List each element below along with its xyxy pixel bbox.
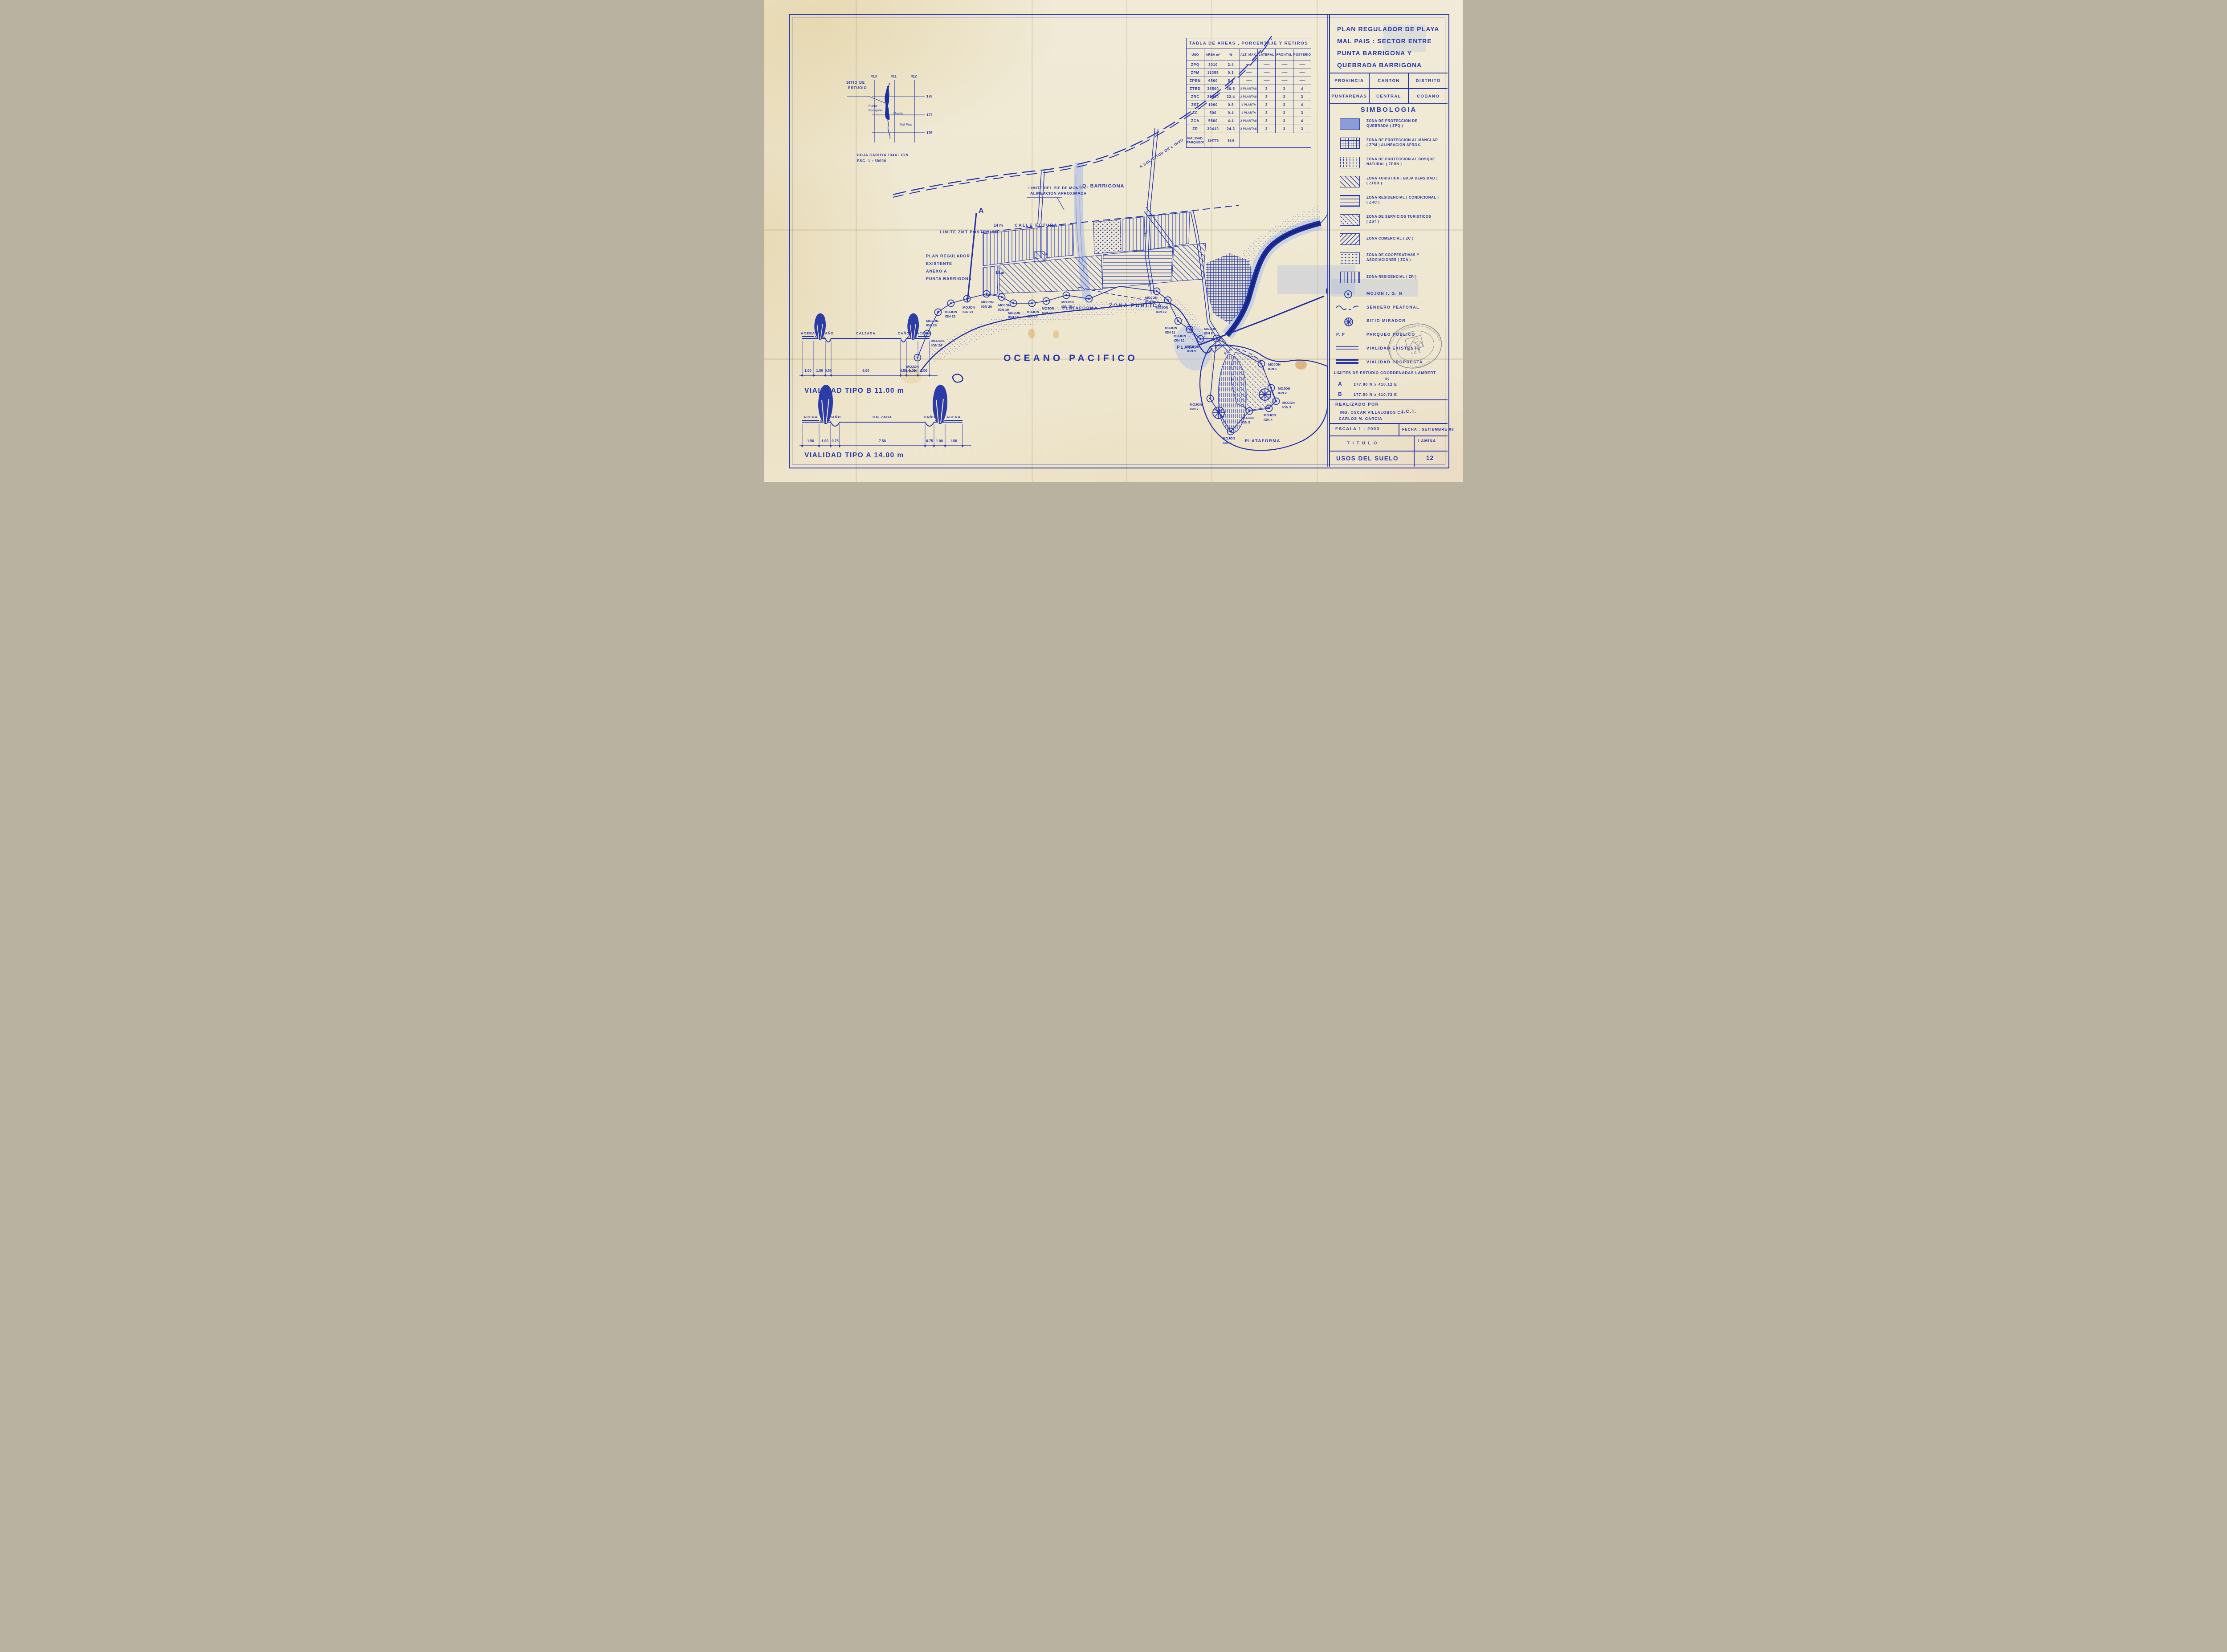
vialidad-propuesta-icon bbox=[1335, 358, 1360, 365]
coord-a-correction: 80 bbox=[1385, 377, 1390, 381]
zca-swatch bbox=[1340, 252, 1360, 264]
inset-map: 410 411 412 178 177 176 SITIO DE ESTUDIO… bbox=[844, 70, 939, 166]
svg-text:1.50: 1.50 bbox=[950, 439, 957, 443]
inset-leader bbox=[847, 96, 888, 104]
zpm-swatch bbox=[1340, 138, 1360, 149]
panel-rule bbox=[1329, 423, 1448, 424]
svg-text:ACERA: ACERA bbox=[801, 331, 815, 335]
legend-zc: ZONA COMERCIAL ( ZC ) bbox=[1331, 232, 1448, 250]
inset-caption2: ESC. 1 : 50000 bbox=[857, 159, 886, 163]
legend-mojon: MOJON I. G. N bbox=[1331, 289, 1448, 303]
zr-swatch bbox=[1340, 272, 1360, 283]
svg-text:MOJONIGN 6: MOJONIGN 6 bbox=[1223, 436, 1235, 445]
svg-text:MOJONIGN 4: MOJONIGN 4 bbox=[1264, 413, 1276, 422]
legend-zrc: ZONA RESIDENCIAL ( CONDICIONAL )( ZRC ) bbox=[1331, 194, 1448, 212]
calle-futura-m: 14 m bbox=[994, 223, 1003, 228]
svg-text:PLAN REGULADOR: PLAN REGULADOR bbox=[926, 254, 970, 258]
panel-rule bbox=[1329, 435, 1448, 436]
realizado-heading: REALIZADO POR bbox=[1335, 402, 1379, 407]
escala-divider bbox=[1399, 423, 1399, 435]
lamina-label: LAMINA bbox=[1418, 439, 1436, 443]
zone-zr bbox=[1123, 217, 1145, 252]
legend-zpq: ZONA DE PROTECCION DEQUEBRADA ( ZPQ ) bbox=[1331, 118, 1448, 135]
svg-text:EXISTENTE: EXISTENTE bbox=[926, 261, 952, 266]
tree-icon bbox=[814, 313, 826, 340]
zc-swatch bbox=[1340, 233, 1360, 245]
svg-text:0.75: 0.75 bbox=[926, 439, 933, 443]
areas-row-ztbd: ZTBD3850030.82 PLANTAS334 bbox=[1187, 85, 1311, 93]
inset-y-178: 178 bbox=[926, 94, 933, 98]
areas-row-vialidad: VIALIDAD.PARQUEOS 124775 99.8 bbox=[1187, 133, 1311, 148]
vialidad-a-section: ACERA CAÑO CALZADA CAÑO ACERA 1.50 1.00 … bbox=[798, 376, 974, 461]
zpbn-swatch bbox=[1340, 157, 1360, 168]
svg-text:1.50: 1.50 bbox=[807, 439, 814, 443]
fecha: FECHA : SETIEMBRE 98 bbox=[1402, 427, 1454, 431]
svg-text:MOJONIGN 20: MOJONIGN 20 bbox=[981, 300, 994, 309]
inset-muelle: Muelle bbox=[893, 111, 903, 115]
pie-monte-label1: LIMITE DEL PIE DE MONTE bbox=[1028, 186, 1084, 190]
svg-text:MOJONIGN 10: MOJONIGN 10 bbox=[1174, 334, 1186, 342]
oceano-label: OCEANO PACIFICO bbox=[1003, 353, 1138, 363]
areas-table: TABLA DE AREAS , PORCENTAJE Y RETIROS US… bbox=[1186, 38, 1311, 148]
section-b-label: B bbox=[1326, 288, 1328, 295]
svg-text:ACERA: ACERA bbox=[804, 415, 818, 419]
legend-zst: ZONA DE SERVICIOS TURISTICOS( ZST ) bbox=[1331, 213, 1448, 231]
coord-a: A 177.80 N x 410.12 E 80 bbox=[1338, 381, 1397, 387]
zona-publica-label: ZONA PUBLICA bbox=[1109, 302, 1162, 309]
mirador-icon bbox=[1343, 317, 1354, 327]
limite-zmt-label: LIMITE ZMT POSTERIOR bbox=[940, 230, 999, 234]
quebrada-label: Q. BARRIGONA bbox=[1082, 183, 1125, 189]
svg-text:0.50: 0.50 bbox=[900, 369, 907, 373]
svg-text:0.75: 0.75 bbox=[832, 439, 839, 443]
parqueo-p2: P bbox=[1045, 258, 1048, 261]
inset-caption1: HOJA CABUYA 1344 I IGN bbox=[857, 153, 909, 157]
svg-text:MOJONIGN 18: MOJONIGN 18 bbox=[1008, 311, 1020, 319]
svg-text:7.50: 7.50 bbox=[879, 439, 886, 443]
realizado-name1: ING. OSCAR VILLALOBOS CH. bbox=[1340, 410, 1405, 415]
svg-text:1.00: 1.00 bbox=[936, 439, 943, 443]
legend-zpm: ZONA DE PROTECCION AL MANGLAR( ZPM ) ALI… bbox=[1331, 137, 1448, 155]
inset-x-410: 410 bbox=[871, 74, 877, 78]
title-line-2: MAL PAIS : SECTOR ENTRE bbox=[1337, 35, 1444, 47]
svg-text:MOJONIGN 2: MOJONIGN 2 bbox=[1278, 387, 1290, 395]
drawing-sheet: P P A B bbox=[764, 0, 1463, 482]
distrito-value: COBANO bbox=[1409, 89, 1448, 104]
areas-row-zpbn: ZPBN65005.2———————— bbox=[1187, 77, 1311, 85]
plataforma-left-label: PLATAFORMA bbox=[1062, 306, 1098, 311]
legend-sendero: SENDERO PEATONAL bbox=[1331, 303, 1448, 317]
svg-text:MOJONIGN 3: MOJONIGN 3 bbox=[1282, 401, 1295, 409]
parqueo-box bbox=[1035, 252, 1044, 261]
svg-text:1.00: 1.00 bbox=[909, 369, 916, 373]
legend-zca: ZONA DE COOPERATIVAS YASOCIACIONES ( ZCA… bbox=[1331, 252, 1448, 269]
zpq-swatch bbox=[1340, 118, 1360, 130]
svg-text:1.00: 1.00 bbox=[821, 439, 828, 443]
svg-text:CAÑO: CAÑO bbox=[822, 331, 834, 335]
playa-label: PLAYA bbox=[1177, 345, 1195, 350]
areas-row-zrc: ZRC2800022.42 PLANTAS333 bbox=[1187, 93, 1311, 101]
svg-text:CAÑO: CAÑO bbox=[829, 415, 841, 419]
svg-text:MOJONIGN 5: MOJONIGN 5 bbox=[1241, 416, 1254, 424]
svg-text:MOJONIGN 11: MOJONIGN 11 bbox=[1165, 326, 1177, 334]
vialidad-a-title: VIALIDAD TIPO A 14.00 m bbox=[804, 452, 904, 459]
pie-monte-leader bbox=[1027, 197, 1064, 210]
provincia-header: PROVINCIA bbox=[1330, 73, 1370, 88]
zone-zr bbox=[1150, 212, 1190, 249]
vialidad-existente-icon bbox=[1335, 344, 1360, 351]
zrc-swatch bbox=[1340, 195, 1360, 207]
coord-b: B 177.50 N x 410.72 E bbox=[1338, 391, 1397, 397]
lamina-value: 12 bbox=[1426, 455, 1434, 461]
tree-icon bbox=[907, 313, 919, 340]
title-line-4: QUEBRADA BARRIGONA bbox=[1337, 59, 1444, 71]
simbologia-title: SIMBOLOGIA bbox=[1331, 106, 1447, 114]
svg-text:MOJONIGN 1: MOJONIGN 1 bbox=[1268, 362, 1281, 371]
legend-zr: ZONA RESIDENCIAL ( ZR ) bbox=[1331, 271, 1448, 289]
inset-x-411: 411 bbox=[891, 74, 897, 78]
invu-label: A SOLICITUD DE L INVU bbox=[1139, 138, 1184, 169]
zone-zr bbox=[1046, 224, 1074, 258]
svg-text:PUNTA BARRIGONA: PUNTA BARRIGONA bbox=[926, 277, 972, 281]
sendero-icon bbox=[1335, 303, 1360, 312]
svg-text:I. C. T.: I. C. T. bbox=[1411, 349, 1421, 355]
panel-rule bbox=[1329, 399, 1448, 400]
svg-text:0.50: 0.50 bbox=[825, 369, 832, 373]
svg-text:ANEXO A: ANEXO A bbox=[926, 269, 947, 273]
svg-text:ACERA: ACERA bbox=[946, 415, 961, 419]
inset-punta1: Punta bbox=[869, 104, 877, 108]
svg-text:CAÑO: CAÑO bbox=[924, 415, 935, 419]
areas-row-zr: ZR3041024.32 PLANTAS333 bbox=[1187, 125, 1311, 133]
svg-text:CALZADA: CALZADA bbox=[873, 415, 892, 419]
realizado-org: I.C.T. bbox=[1402, 409, 1416, 414]
inset-y-177: 177 bbox=[926, 113, 933, 117]
svg-text:6.00: 6.00 bbox=[862, 369, 869, 373]
svg-text:ACERA: ACERA bbox=[917, 331, 931, 335]
svg-text:1.00: 1.00 bbox=[804, 369, 812, 373]
parqueo-p1: P bbox=[1045, 253, 1048, 256]
legend-zpbn: ZONA DE PROTECCION AL BOSQUENATURAL ( ZP… bbox=[1331, 156, 1448, 174]
title-line-1: PLAN REGULADOR DE PLAYA bbox=[1337, 23, 1444, 35]
legend-ztbd: ZONA TURISTICA ( BAJA DENSIDAD )( ZTBD ) bbox=[1331, 175, 1448, 193]
inset-y-176: 176 bbox=[926, 131, 933, 135]
areas-row-zpm: ZPM113559.1———————— bbox=[1187, 69, 1311, 77]
title-line-3: PUNTA BARRIGONA Y bbox=[1337, 47, 1444, 59]
canton-value: CENTRAL bbox=[1370, 89, 1409, 104]
calle-futura-label: CALLE FUTURA bbox=[1015, 223, 1058, 228]
svg-text:MOJONIGN 16: MOJONIGN 16 bbox=[1042, 306, 1054, 315]
areas-table-title: TABLA DE AREAS , PORCENTAJE Y RETIROS bbox=[1187, 38, 1311, 49]
zone-zrc bbox=[1102, 247, 1173, 289]
titulo-label: T I T U L O bbox=[1347, 441, 1378, 446]
realizado-name2: CARLOS M. GARCIA bbox=[1339, 416, 1383, 421]
admin-table: PROVINCIA CANTON DISTRITO PUNTARENAS CEN… bbox=[1330, 73, 1448, 104]
road14-label: 14 m bbox=[995, 270, 1004, 275]
inset-punta2: Barrigona bbox=[869, 108, 882, 112]
ict-stamp: DIRECCION DE PLANEAMIENTO Y DESARROLLO T… bbox=[1382, 317, 1448, 375]
pp-icon: P. P bbox=[1336, 332, 1345, 337]
inset-malpais: Mal Pais bbox=[900, 122, 912, 126]
plan-regulador-label: PLAN REGULADOR EXISTENTE ANEXO A PUNTA B… bbox=[926, 254, 972, 281]
svg-text:CALZADA: CALZADA bbox=[856, 331, 876, 335]
canton-header: CANTON bbox=[1370, 73, 1409, 88]
distrito-header: DISTRITO bbox=[1409, 73, 1448, 88]
pie-monte-label2: ALINEACION APROXIMADA bbox=[1030, 191, 1087, 195]
plataforma-right-label: PLATAFORMA bbox=[1245, 439, 1281, 444]
panel-rule bbox=[1329, 451, 1448, 452]
mojon-ign-icon bbox=[1343, 289, 1353, 299]
areas-table-header: USO AREA m² % ALT. MAX. LATERAL FRONTAL … bbox=[1187, 49, 1311, 61]
areas-row-zc: ZC5000.41 PLANTA333 bbox=[1187, 109, 1311, 117]
areas-row-zca: ZCA55004.42 PLANTAS334 bbox=[1187, 117, 1311, 125]
titulo-value: USOS DEL SUELO bbox=[1336, 455, 1399, 462]
svg-text:MOJONIGN 17: MOJONIGN 17 bbox=[1027, 310, 1039, 318]
svg-text:CAÑO: CAÑO bbox=[898, 331, 910, 335]
inset-sitio2: ESTUDIO bbox=[848, 86, 867, 90]
ztbd-swatch bbox=[1340, 176, 1360, 187]
svg-text:1.00: 1.00 bbox=[920, 369, 927, 373]
provincia-value: PUNTARENAS bbox=[1330, 89, 1370, 104]
inset-x-412: 412 bbox=[911, 74, 917, 78]
svg-text:MOJONIGN 22: MOJONIGN 22 bbox=[945, 310, 957, 318]
section-a-label: A bbox=[979, 207, 984, 215]
zone-zca bbox=[1093, 220, 1121, 254]
zone-ztbd bbox=[1172, 243, 1206, 281]
svg-text:MOJONIGN 21: MOJONIGN 21 bbox=[963, 305, 975, 314]
svg-text:MOJONIGN 7: MOJONIGN 7 bbox=[1190, 403, 1202, 411]
areas-row-zst: ZST10000.81 PLANTA334 bbox=[1187, 101, 1311, 109]
escala: ESCALA 1 : 2000 bbox=[1335, 427, 1379, 431]
svg-text:1.00: 1.00 bbox=[816, 369, 823, 373]
zst-swatch bbox=[1340, 214, 1360, 226]
areas-row-zpq: ZPQ30102.4———————— bbox=[1187, 61, 1311, 69]
sheet-title: PLAN REGULADOR DE PLAYA MAL PAIS : SECTO… bbox=[1337, 23, 1444, 71]
inset-sitio1: SITIO DE bbox=[846, 81, 865, 85]
